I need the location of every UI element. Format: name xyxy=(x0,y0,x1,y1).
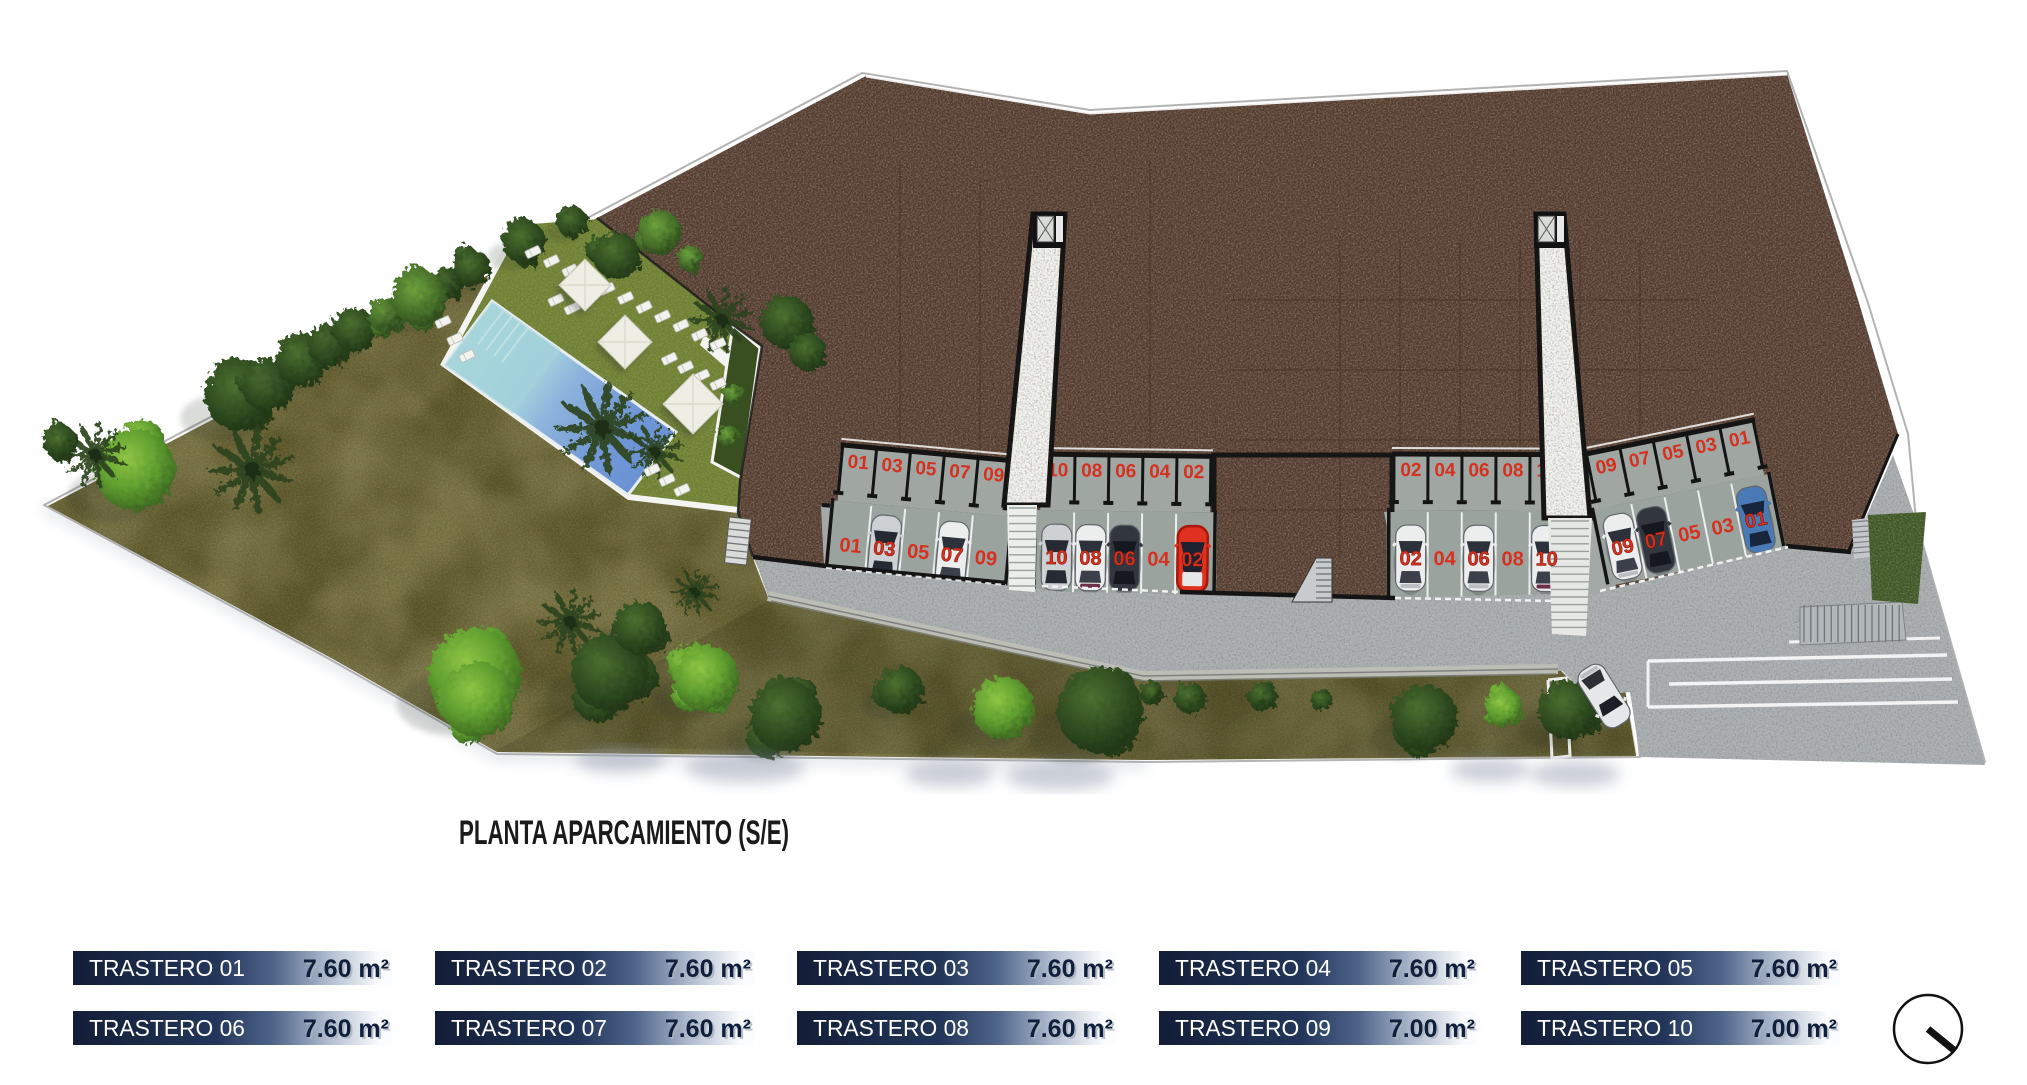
svg-text:07: 07 xyxy=(948,461,971,484)
svg-text:TRASTERO 03: TRASTERO 03 xyxy=(813,955,969,981)
svg-text:TRASTERO 05: TRASTERO 05 xyxy=(1537,955,1693,981)
svg-text:01: 01 xyxy=(1743,507,1769,533)
svg-text:04: 04 xyxy=(1433,548,1456,570)
svg-text:TRASTERO 06: TRASTERO 06 xyxy=(89,1015,245,1041)
svg-text:TRASTERO 02: TRASTERO 02 xyxy=(451,955,607,981)
svg-text:TRASTERO 01: TRASTERO 01 xyxy=(89,955,245,981)
svg-text:7.60 m²: 7.60 m² xyxy=(1751,955,1837,983)
svg-text:01: 01 xyxy=(847,452,870,475)
svg-text:04: 04 xyxy=(1149,462,1171,483)
svg-text:TRASTERO 10: TRASTERO 10 xyxy=(1537,1015,1693,1041)
svg-text:08: 08 xyxy=(1081,461,1102,482)
svg-text:7.60 m²: 7.60 m² xyxy=(1389,955,1475,983)
svg-text:TRASTERO 08: TRASTERO 08 xyxy=(813,1015,969,1041)
svg-text:10: 10 xyxy=(1535,548,1557,570)
svg-text:03: 03 xyxy=(881,455,904,478)
svg-text:7.60 m²: 7.60 m² xyxy=(665,955,751,983)
svg-text:09: 09 xyxy=(1610,535,1636,561)
svg-text:05: 05 xyxy=(1676,521,1702,547)
svg-text:7.60 m²: 7.60 m² xyxy=(303,1015,389,1043)
svg-text:04: 04 xyxy=(1434,460,1456,481)
svg-text:06: 06 xyxy=(1468,460,1489,481)
svg-text:08: 08 xyxy=(1501,548,1523,570)
svg-text:06: 06 xyxy=(1115,461,1136,482)
svg-text:06: 06 xyxy=(1113,548,1136,570)
svg-text:10: 10 xyxy=(1045,547,1068,569)
svg-text:02: 02 xyxy=(1181,549,1204,571)
svg-text:09: 09 xyxy=(1594,454,1619,479)
svg-text:07: 07 xyxy=(1643,528,1669,554)
svg-text:7.00 m²: 7.00 m² xyxy=(1751,1015,1837,1043)
svg-text:TRASTERO 07: TRASTERO 07 xyxy=(451,1015,607,1041)
svg-text:7.60 m²: 7.60 m² xyxy=(1027,955,1113,983)
svg-text:04: 04 xyxy=(1147,548,1170,570)
svg-text:02: 02 xyxy=(1183,462,1204,483)
svg-text:09: 09 xyxy=(974,547,998,571)
svg-text:07: 07 xyxy=(1627,448,1652,473)
svg-text:05: 05 xyxy=(914,458,937,481)
svg-text:7.60 m²: 7.60 m² xyxy=(665,1015,751,1043)
svg-text:TRASTERO 09: TRASTERO 09 xyxy=(1175,1015,1331,1041)
svg-text:TRASTERO 04: TRASTERO 04 xyxy=(1175,955,1331,981)
svg-text:03: 03 xyxy=(1694,434,1719,459)
svg-text:07: 07 xyxy=(940,544,964,568)
svg-text:08: 08 xyxy=(1079,548,1102,570)
svg-text:08: 08 xyxy=(1502,460,1523,481)
svg-text:06: 06 xyxy=(1467,548,1489,570)
svg-text:7.60 m²: 7.60 m² xyxy=(303,955,389,983)
svg-text:03: 03 xyxy=(872,537,896,561)
svg-text:05: 05 xyxy=(906,540,930,564)
svg-text:7.00 m²: 7.00 m² xyxy=(1389,1015,1475,1043)
svg-text:03: 03 xyxy=(1710,514,1736,540)
svg-text:09: 09 xyxy=(982,464,1005,487)
svg-text:02: 02 xyxy=(1400,460,1421,481)
svg-text:01: 01 xyxy=(838,534,862,558)
svg-text:02: 02 xyxy=(1399,548,1421,570)
svg-text:7.60 m²: 7.60 m² xyxy=(1027,1015,1113,1043)
svg-text:PLANTA APARCAMIENTO (S/E): PLANTA APARCAMIENTO (S/E) xyxy=(459,814,789,852)
